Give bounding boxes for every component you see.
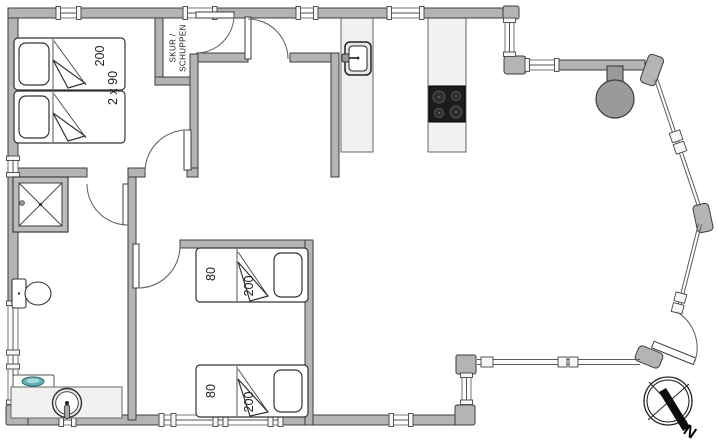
- washing-machine: [13, 375, 54, 388]
- window: [389, 414, 413, 427]
- wall-corner: [455, 405, 475, 425]
- window: [296, 7, 318, 20]
- window: [461, 373, 473, 405]
- bedroom-main-door: [145, 130, 191, 172]
- window: [525, 59, 559, 72]
- double-bed: 200 2 x 90: [14, 38, 125, 143]
- pillow: [274, 253, 302, 297]
- window: [387, 7, 424, 20]
- window: [504, 18, 516, 57]
- window: [56, 7, 81, 20]
- pillow: [19, 43, 49, 85]
- single-bed-top: 80 200: [196, 248, 308, 302]
- wall-corner: [504, 56, 526, 74]
- pillow: [274, 370, 302, 412]
- faucet-icon: [342, 54, 349, 62]
- shed-door: [196, 12, 234, 53]
- shower-valve-icon: [20, 201, 25, 206]
- bed-width-label: 2 x 90: [106, 71, 120, 105]
- washbasin: [53, 389, 82, 419]
- wall-corner: [639, 53, 664, 87]
- toilet: [12, 279, 51, 308]
- window: [7, 156, 20, 177]
- wall-corner: [692, 203, 713, 234]
- window-mark: [671, 292, 687, 314]
- window-mark: [569, 357, 578, 367]
- cooktop: [429, 86, 465, 122]
- single-bed-bottom: 80 200: [196, 365, 308, 417]
- svg-text:SCHUPPEN: SCHUPPEN: [179, 24, 188, 72]
- shed-label: SKUR / SCHUPPEN: [169, 24, 188, 72]
- wall-corner: [503, 6, 519, 19]
- closet-door: [245, 17, 288, 59]
- glazing-walls: [477, 79, 702, 368]
- shower: [13, 177, 68, 232]
- bed-length-label: 200: [242, 392, 256, 413]
- kitchen-counter-right: [428, 14, 466, 152]
- compass-rose: N: [644, 377, 699, 442]
- window-mark: [558, 357, 567, 367]
- bed-length-label: 200: [242, 276, 256, 297]
- bathroom-door: [87, 184, 128, 225]
- bathroom-fixtures: [11, 177, 122, 419]
- wood-burning-stove: [596, 66, 634, 118]
- washbasin-counter: [11, 387, 122, 419]
- bedroom-twin-door: [133, 244, 180, 288]
- kitchen-counter-left: [341, 14, 373, 152]
- bed-width-label: 80: [204, 384, 218, 398]
- svg-text:SKUR /: SKUR /: [169, 33, 178, 62]
- bed-length-label: 200: [93, 46, 107, 67]
- pillow: [19, 96, 49, 138]
- window-mark: [669, 130, 687, 154]
- faucet-icon: [65, 405, 70, 419]
- kitchen: [341, 14, 466, 152]
- wall-corner: [456, 355, 476, 374]
- kitchen-sink: [342, 42, 371, 75]
- bed-width-label: 80: [204, 267, 218, 281]
- floorplan-canvas: 200 2 x 90 SKUR / SCHUPPEN 80 200 80 200…: [0, 0, 718, 442]
- window-mark: [481, 357, 493, 367]
